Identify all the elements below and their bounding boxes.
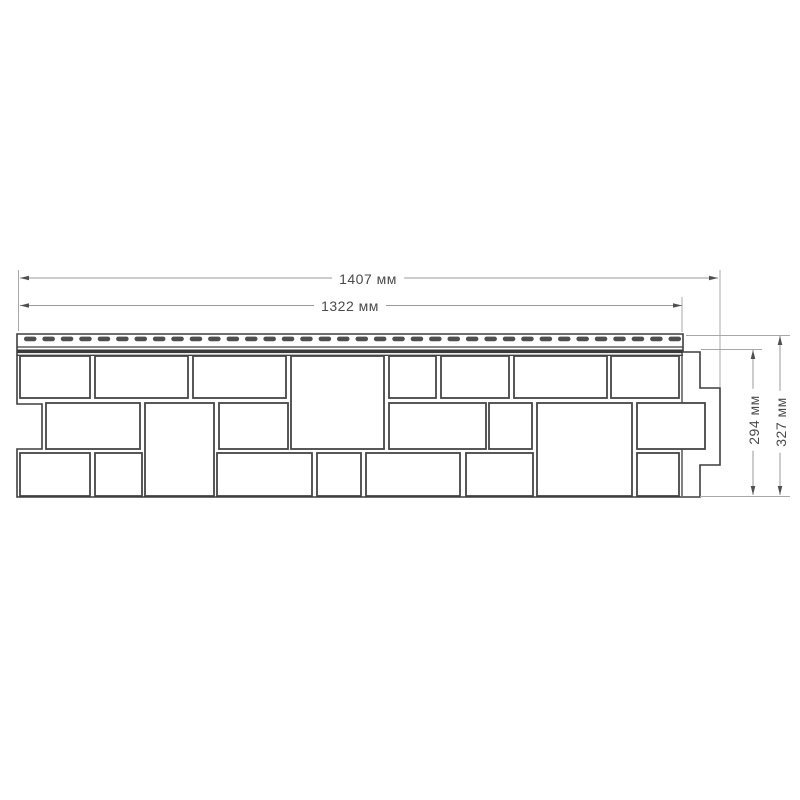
stone-block [193, 356, 286, 398]
stone-block [95, 356, 188, 398]
nail-slot [558, 337, 571, 342]
nail-slot [24, 337, 37, 342]
stone-block [637, 453, 679, 496]
nail-slot [356, 337, 369, 342]
stone-block [95, 453, 142, 496]
dim-arrow-left [20, 303, 29, 308]
nail-slot [484, 337, 497, 342]
stone-block [389, 356, 436, 398]
stone-block [389, 403, 486, 449]
stone-block [489, 403, 532, 449]
nail-slot [503, 337, 516, 342]
dim-arrow-up [751, 350, 756, 359]
stone-block [219, 403, 288, 449]
nail-slot [300, 337, 313, 342]
nail-slot [208, 337, 221, 342]
nail-slot [135, 337, 148, 342]
drawing-canvas: 1407 мм 1322 мм 294 мм 327 мм [0, 0, 800, 800]
nail-slot [171, 337, 184, 342]
nail-slot [576, 337, 589, 342]
stone-block [637, 403, 705, 449]
nail-slot [392, 337, 405, 342]
stone-block [466, 453, 533, 496]
nail-slot [61, 337, 74, 342]
dim-arrow-down [778, 486, 783, 495]
stone-block [611, 356, 679, 398]
stone-block [291, 356, 384, 449]
nail-strip-group [17, 337, 683, 356]
dim-arrow-up [778, 336, 783, 345]
nail-slot [669, 337, 682, 342]
nail-slot [411, 337, 424, 342]
stone-block [20, 453, 90, 496]
lock-band [17, 350, 683, 354]
stone-block [145, 403, 214, 496]
nail-slot [263, 337, 276, 342]
nail-slot [319, 337, 332, 342]
dim-arrow-left [20, 276, 29, 281]
nail-slot [650, 337, 663, 342]
stone-block [317, 453, 361, 496]
nail-slot [153, 337, 166, 342]
stone-block [537, 403, 632, 496]
dim-label-total-height: 327 мм [772, 391, 790, 453]
nail-slot [116, 337, 129, 342]
stone-block [217, 453, 312, 496]
dim-label-face-width: 1322 мм [314, 297, 386, 315]
nail-slot [227, 337, 240, 342]
nail-slot [595, 337, 608, 342]
nail-slot [282, 337, 295, 342]
panel-svg [0, 0, 800, 800]
dim-arrow-right [709, 276, 718, 281]
stone-block [441, 356, 509, 398]
nail-slot [429, 337, 442, 342]
nail-slot [374, 337, 387, 342]
nail-slot [448, 337, 461, 342]
stone-block [20, 356, 90, 398]
stone-block [46, 403, 140, 449]
nail-slot [466, 337, 479, 342]
dim-label-face-height: 294 мм [745, 389, 763, 451]
nail-slot [98, 337, 111, 342]
nail-slot [613, 337, 626, 342]
nail-slot [245, 337, 258, 342]
stone-block [366, 453, 460, 496]
nail-slot [42, 337, 55, 342]
nail-slot [632, 337, 645, 342]
stone-block [514, 356, 607, 398]
dim-label-total-width: 1407 мм [332, 270, 404, 288]
nail-slot [521, 337, 534, 342]
nail-slot [190, 337, 203, 342]
stone-pattern-group [17, 334, 720, 497]
nail-slot [79, 337, 92, 342]
dim-arrow-right [673, 303, 682, 308]
nail-slot [540, 337, 553, 342]
nail-slot [337, 337, 350, 342]
dim-arrow-down [751, 486, 756, 495]
